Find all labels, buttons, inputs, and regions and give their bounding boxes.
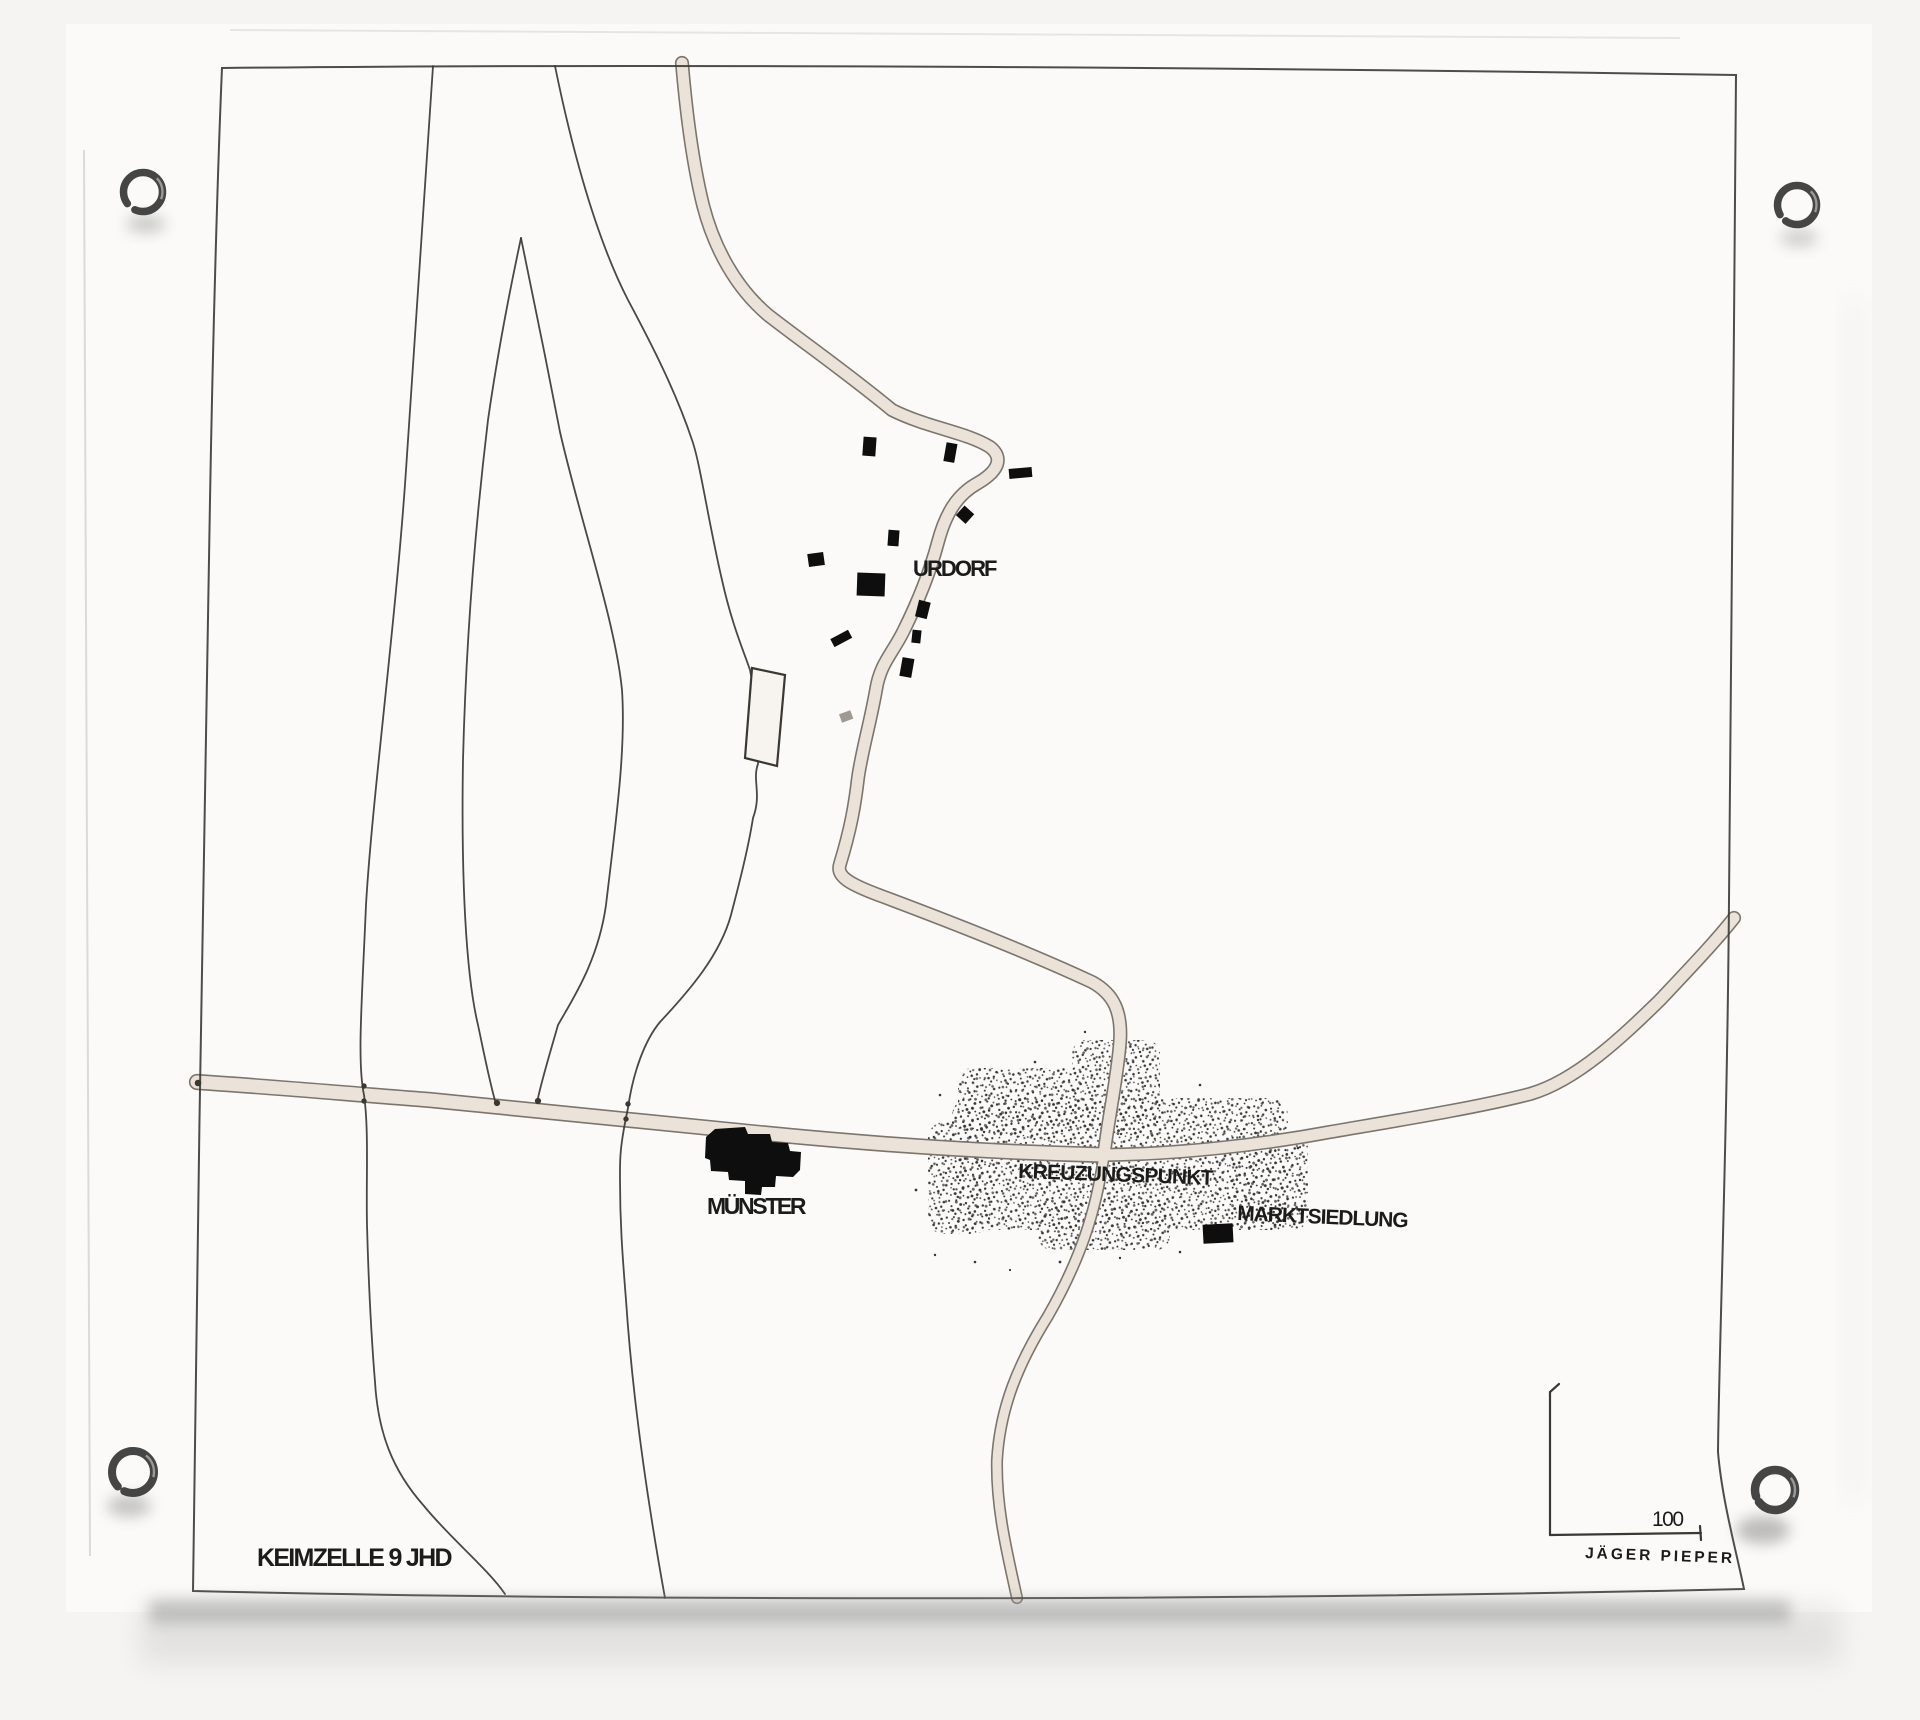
ring-shadow [107,1495,151,1517]
stream-rectangle-feature [745,668,785,766]
building [807,552,825,567]
ring-shadow [1736,1516,1790,1544]
sheet-bottom-shadow-soft [140,1606,1840,1664]
building [862,437,876,457]
building [1009,467,1033,479]
label-urdorf: URDORF [913,556,999,581]
map-caption: KEIMZELLE 9 JHD [257,1544,455,1572]
ring-shadow [1780,229,1818,247]
marktsiedlung-building [1203,1223,1234,1244]
map-photo: URDORF MÜNSTER KREUZUNGSPUNKT MARKTSIEDL… [0,0,1920,1720]
map-drawing: URDORF MÜNSTER KREUZUNGSPUNKT MARKTSIEDL… [0,0,1920,1720]
scale-tick [1700,1526,1701,1540]
label-muenster: MÜNSTER [707,1193,808,1219]
scale-value: 100 [1652,1508,1686,1531]
building [887,530,899,547]
building-large [857,573,886,597]
building [911,630,921,644]
film-edge-right-shadow [1846,300,1862,1500]
film-sheet [66,24,1872,1612]
ring-shadow [126,215,166,233]
